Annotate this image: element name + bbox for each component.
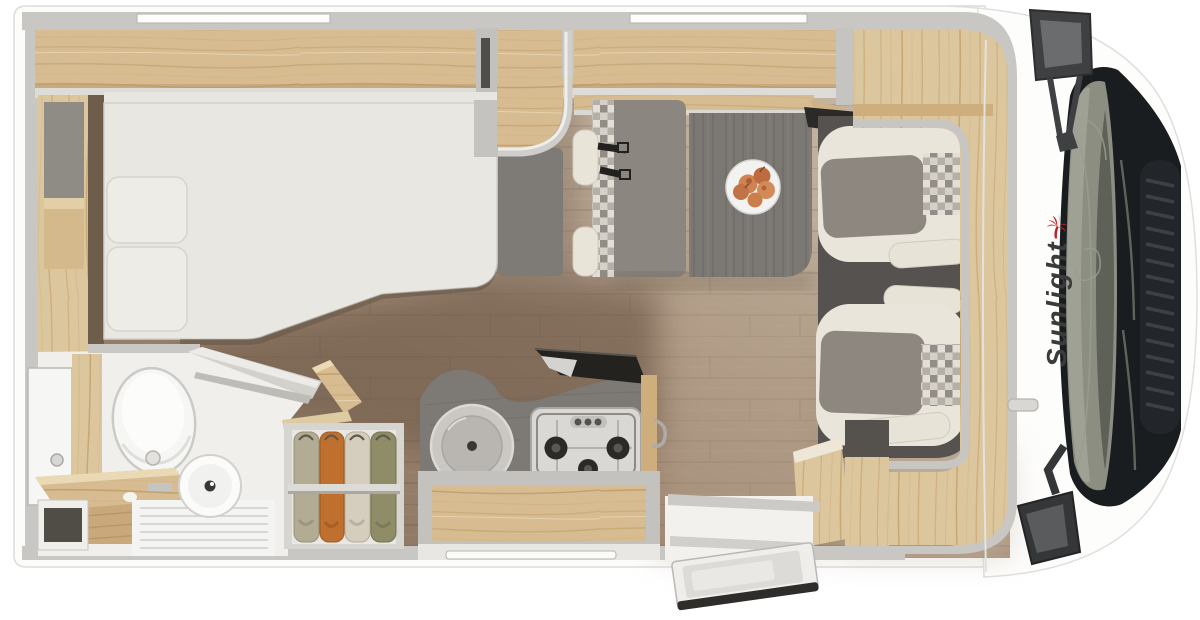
svg-text:Sunlight: Sunlight — [1041, 241, 1072, 367]
